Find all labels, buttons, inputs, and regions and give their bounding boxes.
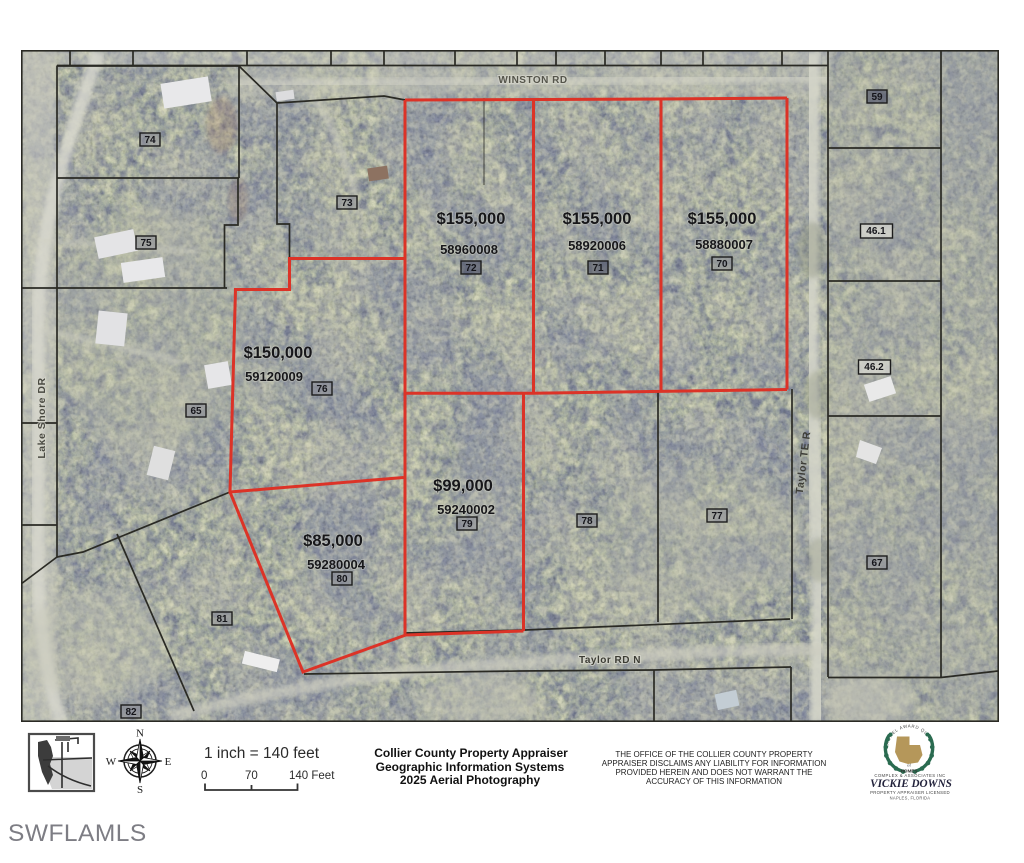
svg-text:2025 Aerial Photography: 2025 Aerial Photography (400, 773, 541, 787)
svg-text:$85,000: $85,000 (303, 532, 363, 550)
svg-text:70: 70 (245, 770, 258, 782)
svg-text:$155,000: $155,000 (437, 210, 506, 228)
svg-text:58880007: 58880007 (695, 237, 753, 252)
svg-text:73: 73 (341, 198, 353, 209)
svg-text:67: 67 (871, 558, 883, 569)
svg-text:81: 81 (216, 614, 228, 625)
svg-text:S: S (137, 784, 143, 796)
svg-text:Lake Shore DR: Lake Shore DR (36, 377, 48, 458)
svg-text:46.1: 46.1 (866, 226, 886, 237)
svg-text:76: 76 (316, 384, 328, 395)
svg-text:VICKIE DOWNS: VICKIE DOWNS (870, 778, 952, 790)
svg-text:140 Feet: 140 Feet (289, 770, 335, 782)
svg-text:77: 77 (711, 511, 723, 522)
svg-text:59240002: 59240002 (437, 502, 495, 517)
svg-text:E: E (165, 756, 172, 768)
svg-text:46.2: 46.2 (864, 362, 884, 373)
svg-text:59120009: 59120009 (245, 369, 303, 384)
svg-text:75: 75 (140, 238, 152, 249)
svg-text:$150,000: $150,000 (244, 344, 313, 362)
svg-text:N: N (136, 728, 144, 740)
svg-text:78: 78 (581, 516, 593, 527)
svg-text:79: 79 (461, 519, 473, 530)
svg-text:59: 59 (871, 92, 883, 103)
svg-text:THE OFFICE OF THE COLLIER COUN: THE OFFICE OF THE COLLIER COUNTY PROPERT… (615, 750, 813, 759)
svg-text:Taylor RD N: Taylor RD N (579, 655, 641, 666)
svg-text:Geographic Information Systems: Geographic Information Systems (376, 760, 565, 774)
svg-text:W: W (106, 756, 117, 768)
svg-text:82: 82 (125, 707, 137, 718)
svg-text:0: 0 (201, 770, 207, 782)
svg-text:1 inch = 140 feet: 1 inch = 140 feet (204, 745, 320, 762)
svg-text:65: 65 (190, 406, 202, 417)
svg-text:Collier County Property Apprai: Collier County Property Appraiser (374, 746, 568, 760)
svg-text:58960008: 58960008 (440, 242, 498, 257)
svg-text:58920006: 58920006 (568, 238, 626, 253)
svg-text:$155,000: $155,000 (563, 210, 632, 228)
svg-text:70: 70 (716, 259, 728, 270)
svg-text:NAPLES, FLORIDA: NAPLES, FLORIDA (890, 795, 931, 800)
svg-text:59280004: 59280004 (307, 557, 366, 572)
svg-text:of: of (907, 763, 911, 768)
svg-text:ACCURACY OF THIS INFORMATION: ACCURACY OF THIS INFORMATION (646, 777, 782, 786)
svg-text:SWFLAMLS: SWFLAMLS (8, 820, 147, 847)
svg-text:$99,000: $99,000 (433, 477, 493, 495)
svg-text:$155,000: $155,000 (688, 210, 757, 228)
svg-text:APPRAISER DISCLAIMS ANY LIABIL: APPRAISER DISCLAIMS ANY LIABILITY FOR IN… (602, 759, 827, 768)
svg-text:74: 74 (144, 135, 156, 146)
svg-text:80: 80 (336, 574, 348, 585)
svg-text:PROVIDED HEREIN AND DOES NOT W: PROVIDED HEREIN AND DOES NOT WARRANT THE (615, 768, 812, 777)
svg-text:72: 72 (465, 263, 477, 274)
svg-text:WINSTON RD: WINSTON RD (498, 75, 567, 86)
svg-text:71: 71 (592, 263, 604, 274)
